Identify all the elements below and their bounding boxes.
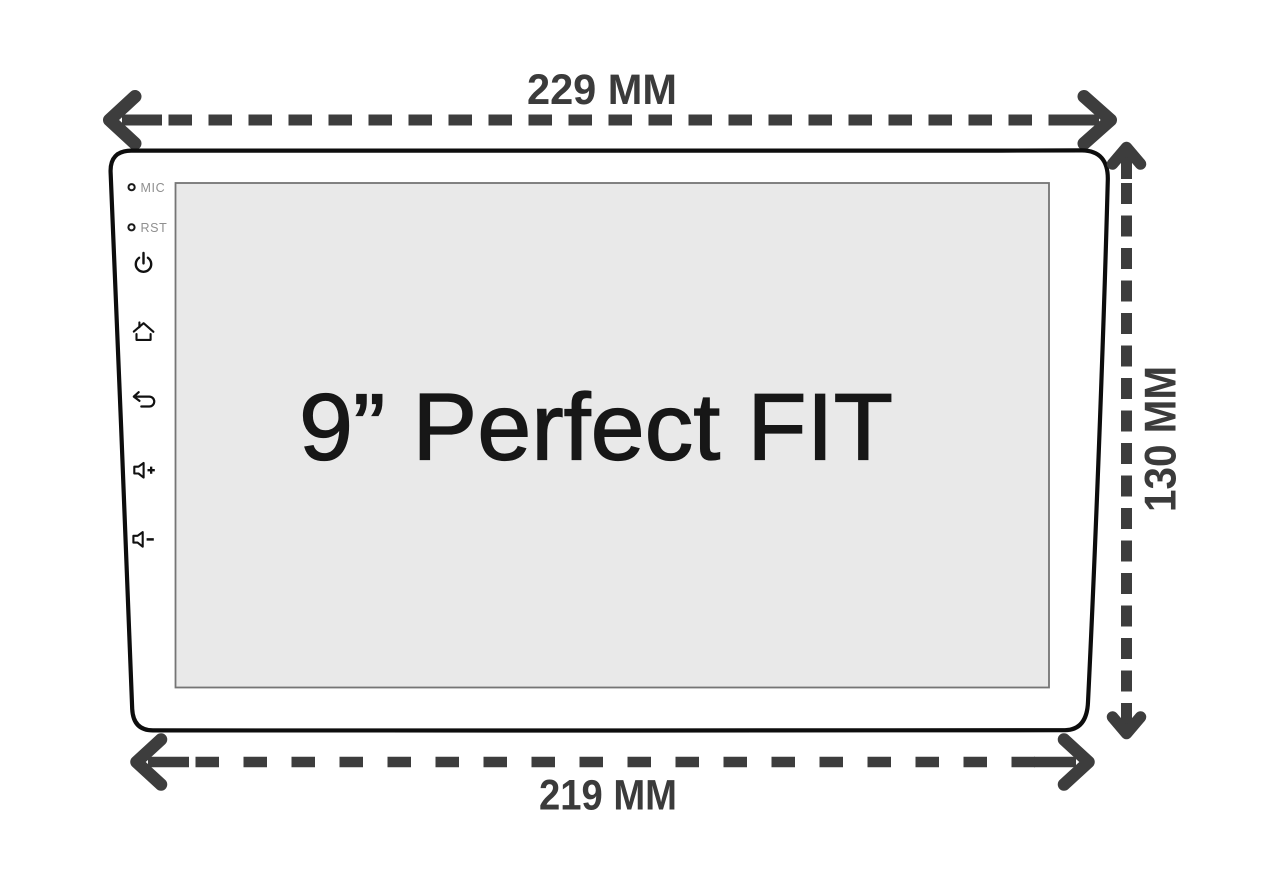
svg-text:MIC: MIC (141, 181, 166, 195)
svg-text:9” Perfect FIT: 9” Perfect FIT (299, 375, 893, 481)
svg-text:229 MM: 229 MM (527, 66, 677, 114)
svg-text:RST: RST (141, 221, 168, 235)
svg-text:219 MM: 219 MM (539, 772, 677, 820)
svg-text:130 MM: 130 MM (1137, 366, 1186, 512)
